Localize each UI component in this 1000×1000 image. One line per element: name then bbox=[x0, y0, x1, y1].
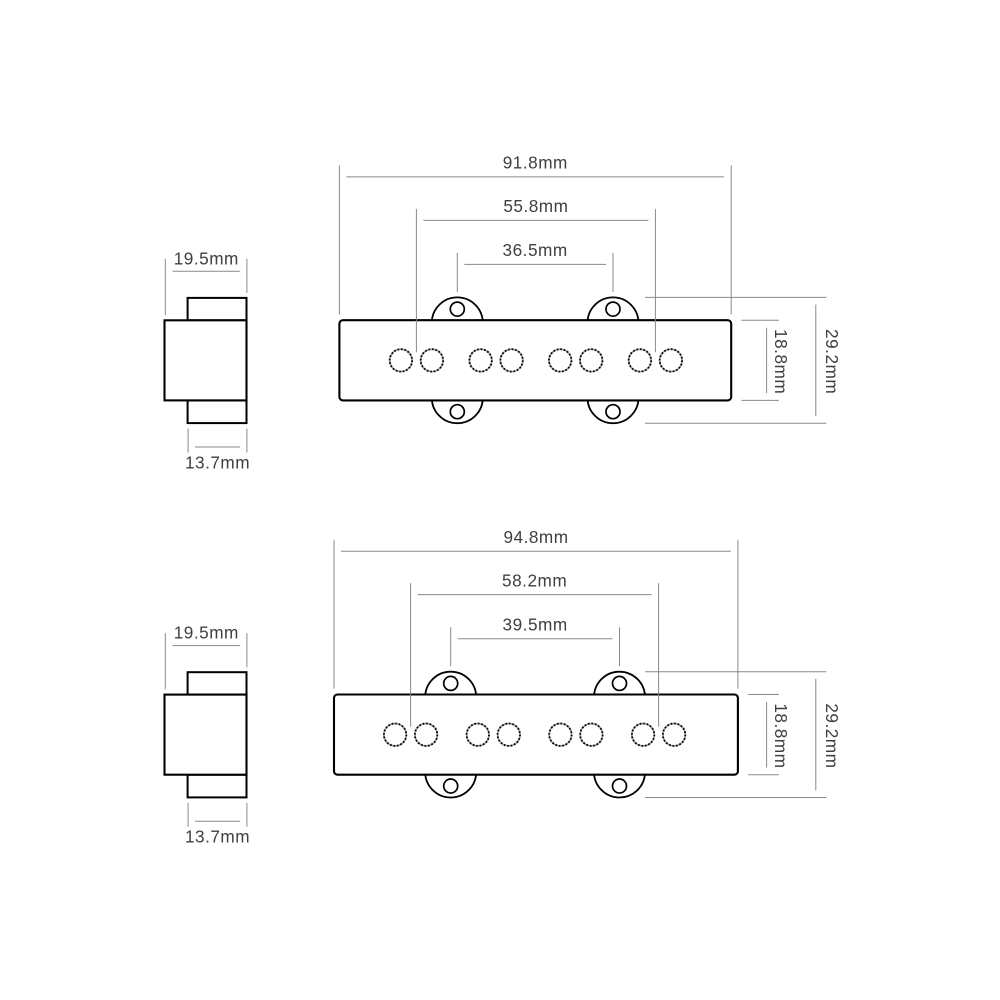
svg-text:29.2mm: 29.2mm bbox=[822, 703, 842, 768]
svg-text:13.7mm: 13.7mm bbox=[185, 452, 250, 472]
svg-text:19.5mm: 19.5mm bbox=[174, 623, 239, 643]
svg-text:58.2mm: 58.2mm bbox=[502, 570, 567, 590]
svg-text:29.2mm: 29.2mm bbox=[822, 329, 842, 394]
svg-text:39.5mm: 39.5mm bbox=[503, 614, 568, 634]
svg-text:18.8mm: 18.8mm bbox=[771, 329, 791, 394]
svg-text:94.8mm: 94.8mm bbox=[503, 527, 568, 547]
svg-text:91.8mm: 91.8mm bbox=[503, 153, 568, 173]
svg-text:55.8mm: 55.8mm bbox=[503, 196, 568, 216]
svg-text:18.8mm: 18.8mm bbox=[771, 703, 791, 768]
svg-text:19.5mm: 19.5mm bbox=[174, 248, 239, 268]
svg-text:36.5mm: 36.5mm bbox=[503, 240, 568, 260]
svg-text:13.7mm: 13.7mm bbox=[185, 827, 250, 847]
